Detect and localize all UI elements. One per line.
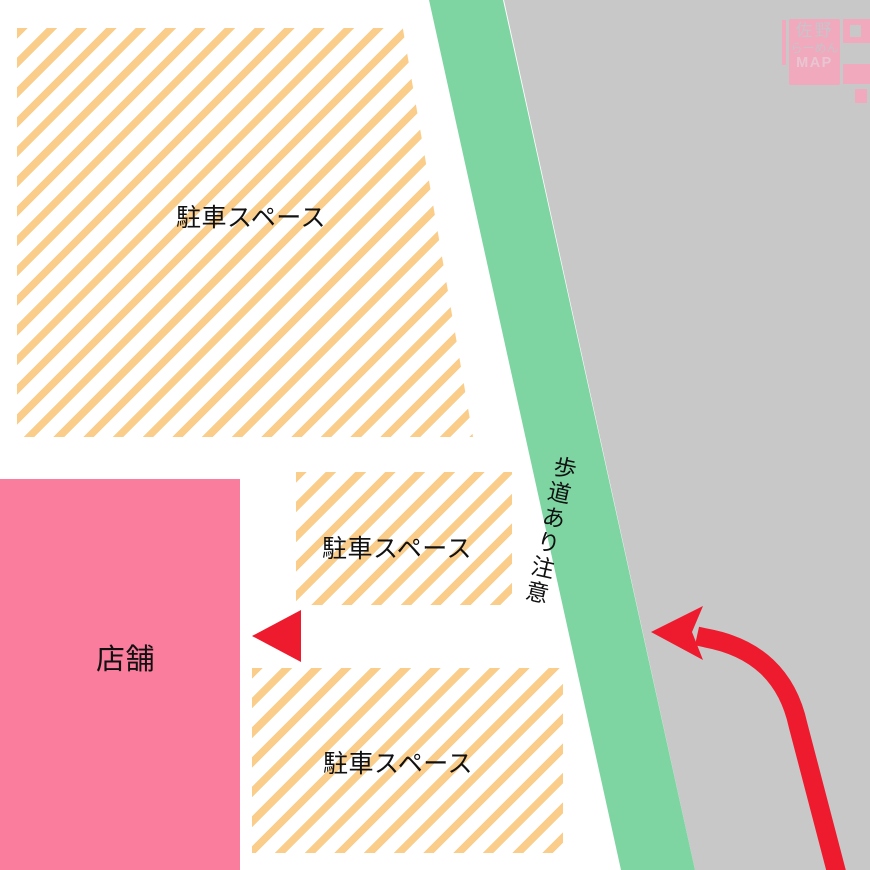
parking-label-main: 駐車スペース [176, 198, 326, 234]
logo-deco-square-hole [850, 25, 861, 37]
store-label: 店舗 [96, 636, 155, 678]
logo-deco-square-bottom [855, 89, 867, 103]
logo-deco-square-middle [843, 64, 870, 84]
logo-deco-square-top [843, 19, 870, 43]
parking-label-lower: 駐車スペース [323, 744, 473, 780]
entrance-arrow-head [651, 606, 703, 660]
logo-deco-bar [782, 20, 786, 65]
logo-title-ramen: らーめん [789, 41, 840, 55]
store-direction-arrow [252, 610, 301, 662]
logo-title-sano: 佐野 [789, 22, 840, 41]
parking-map: 駐車スペース 駐車スペース 駐車スペース 店舗 歩道あり注意 佐野 らーめん M… [0, 0, 870, 870]
logo-title-map: MAP [789, 55, 840, 72]
parking-label-middle: 駐車スペース [322, 529, 472, 565]
logo-plate: 佐野 らーめん MAP [789, 19, 840, 85]
arrow-layer [0, 0, 870, 870]
entrance-arrow-shaft [697, 636, 837, 870]
